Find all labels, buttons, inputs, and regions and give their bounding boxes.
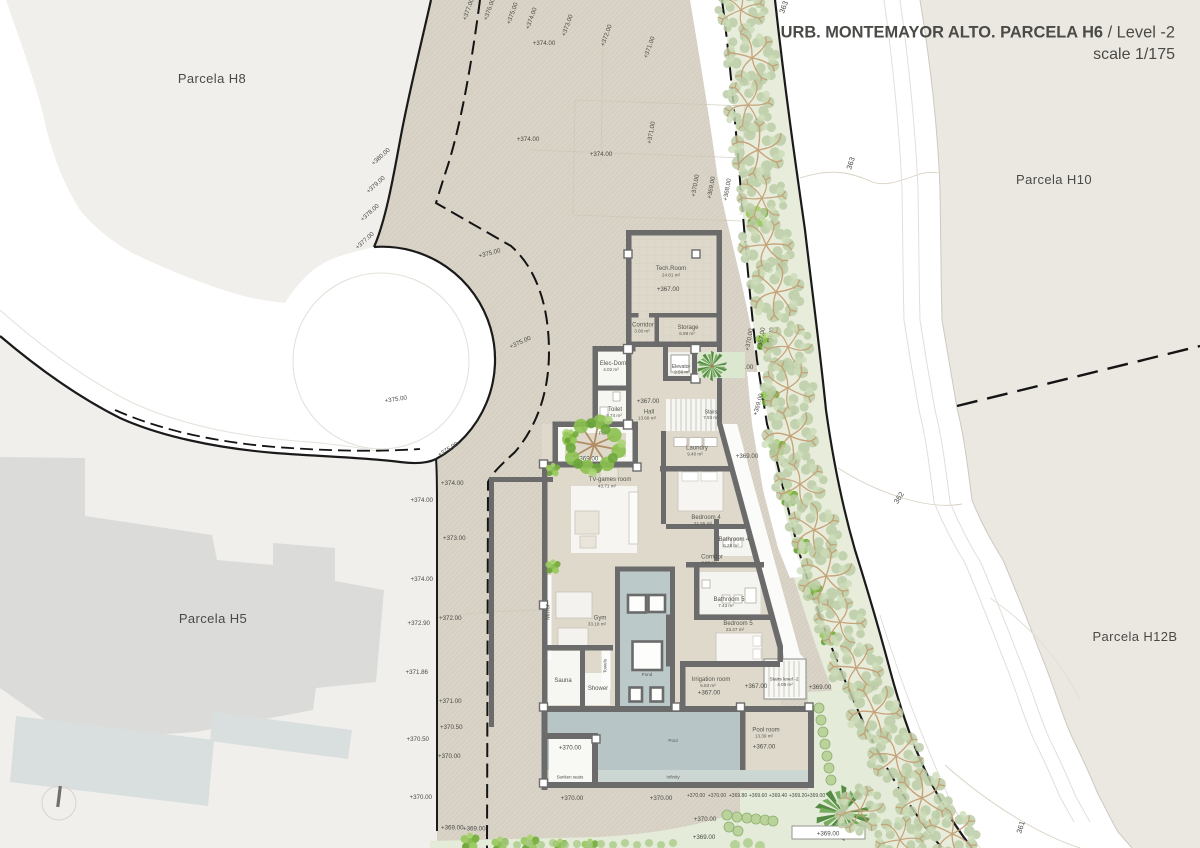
svg-text:Parcela H10: Parcela H10 bbox=[1016, 172, 1092, 187]
svg-text:2.56 m²: 2.56 m² bbox=[674, 370, 690, 375]
svg-text:Parcela H8: Parcela H8 bbox=[178, 71, 246, 86]
svg-text:13.68 m²: 13.68 m² bbox=[638, 416, 657, 421]
svg-text:+370.00: +370.00 bbox=[708, 793, 726, 799]
svg-text:6.83 m²: 6.83 m² bbox=[700, 683, 716, 688]
svg-text:+369.00: +369.00 bbox=[463, 826, 486, 833]
svg-text:23.47 m²: 23.47 m² bbox=[726, 627, 745, 632]
svg-text:4.02 m²: 4.02 m² bbox=[603, 367, 619, 372]
svg-text:+369.20: +369.20 bbox=[789, 793, 807, 799]
svg-text:+374.00: +374.00 bbox=[441, 480, 464, 487]
svg-text:+371.00: +371.00 bbox=[439, 698, 462, 705]
svg-text:Infinity: Infinity bbox=[666, 775, 680, 780]
svg-text:+367.00: +367.00 bbox=[745, 683, 768, 690]
svg-text:URB. MONTEMAYOR ALTO. PARCELA: URB. MONTEMAYOR ALTO. PARCELA H6 / Level… bbox=[781, 24, 1175, 42]
svg-text:+370.50: +370.50 bbox=[440, 724, 463, 731]
svg-text:scale 1/175: scale 1/175 bbox=[1093, 46, 1175, 63]
svg-text:43.71 m²: 43.71 m² bbox=[598, 484, 617, 489]
svg-text:+369.00: +369.00 bbox=[441, 825, 464, 832]
svg-text:+367.00: +367.00 bbox=[637, 398, 660, 405]
svg-text:+369.80: +369.80 bbox=[729, 793, 747, 799]
svg-text:+370.00: +370.00 bbox=[559, 745, 582, 752]
svg-text:+370.00: +370.00 bbox=[409, 794, 432, 801]
svg-text:+373.00: +373.00 bbox=[443, 535, 466, 542]
svg-text:3.00 m²: 3.00 m² bbox=[634, 329, 650, 334]
svg-text:Pond: Pond bbox=[642, 672, 653, 677]
svg-text:+374.00: +374.00 bbox=[517, 136, 540, 143]
svg-text:+370.00: +370.00 bbox=[650, 795, 673, 802]
svg-text:6.99 m²: 6.99 m² bbox=[679, 331, 695, 336]
svg-text:24.81 m²: 24.81 m² bbox=[662, 273, 681, 278]
svg-text:4.09 m²: 4.09 m² bbox=[777, 682, 793, 687]
svg-text:Parcela H5: Parcela H5 bbox=[179, 611, 247, 626]
svg-text:TV-games room: TV-games room bbox=[589, 477, 632, 483]
svg-text:Sauna: Sauna bbox=[554, 678, 572, 684]
svg-text:+369.00: +369.00 bbox=[693, 834, 716, 841]
svg-text:Mirror: Mirror bbox=[546, 604, 552, 620]
svg-text:+369.00: +369.00 bbox=[736, 453, 759, 460]
svg-text:+369.60: +369.60 bbox=[749, 793, 767, 799]
svg-text:9.40 m²: 9.40 m² bbox=[687, 452, 703, 457]
svg-text:+370.00: +370.00 bbox=[694, 816, 717, 823]
svg-text:+374.00: +374.00 bbox=[590, 151, 613, 158]
svg-text:+369.00: +369.00 bbox=[817, 831, 840, 838]
svg-text:+370.50: +370.50 bbox=[406, 736, 429, 743]
svg-text:+369.00: +369.00 bbox=[807, 793, 825, 799]
svg-text:Pool: Pool bbox=[668, 738, 677, 743]
svg-text:+372.90: +372.90 bbox=[407, 620, 430, 627]
svg-text:+374.00: +374.00 bbox=[533, 40, 556, 47]
svg-text:+370.00: +370.00 bbox=[438, 753, 461, 760]
svg-text:+370.00: +370.00 bbox=[561, 795, 584, 802]
svg-text:Sunken seats: Sunken seats bbox=[557, 775, 584, 780]
svg-text:+369.40: +369.40 bbox=[769, 793, 787, 799]
svg-text:7.93 m²: 7.93 m² bbox=[703, 415, 719, 420]
svg-text:Parcela H12B: Parcela H12B bbox=[1092, 629, 1177, 644]
svg-text:+367.00: +367.00 bbox=[753, 744, 776, 751]
svg-text:+367.00: +367.00 bbox=[698, 690, 721, 697]
svg-text:+371.86: +371.86 bbox=[405, 669, 428, 676]
svg-text:Towels: Towels bbox=[603, 658, 608, 673]
svg-text:7.43 m²: 7.43 m² bbox=[718, 603, 734, 608]
svg-text:33.18 m²: 33.18 m² bbox=[588, 622, 607, 627]
svg-text:Tech.Room: Tech.Room bbox=[656, 266, 686, 272]
svg-text:+370.00: +370.00 bbox=[687, 793, 705, 799]
svg-text:+369.00: +369.00 bbox=[809, 684, 832, 691]
svg-text:Shower: Shower bbox=[588, 686, 608, 692]
svg-text:+367.00: +367.00 bbox=[657, 286, 680, 293]
svg-text:6.28 m²: 6.28 m² bbox=[723, 543, 739, 548]
svg-text:13.39 m²: 13.39 m² bbox=[755, 734, 774, 739]
svg-text:+372.00: +372.00 bbox=[439, 615, 462, 622]
svg-text:+374.00: +374.00 bbox=[410, 576, 433, 583]
svg-text:2.96 m²: 2.96 m² bbox=[701, 560, 717, 565]
svg-text:21.55 m²: 21.55 m² bbox=[694, 521, 713, 526]
svg-text:+374.00: +374.00 bbox=[410, 497, 433, 504]
